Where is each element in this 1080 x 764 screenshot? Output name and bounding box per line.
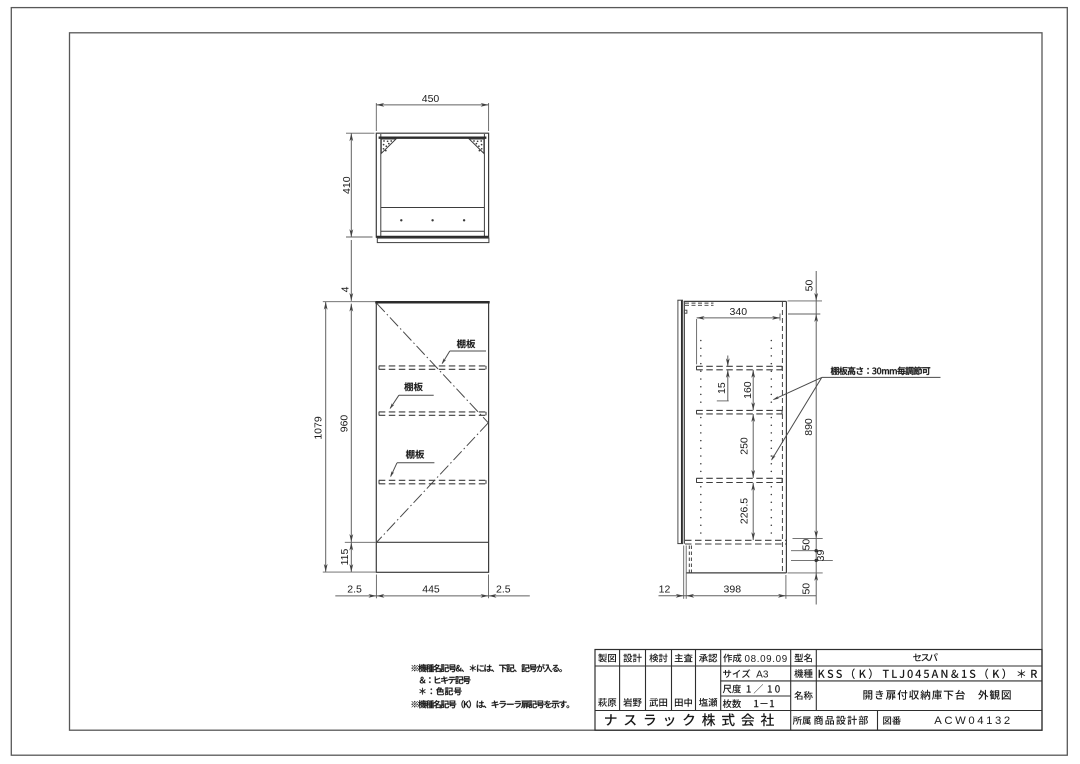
svg-text:12: 12 — [659, 583, 671, 595]
svg-text:50: 50 — [800, 583, 812, 595]
svg-text:115: 115 — [339, 548, 351, 565]
svg-text:450: 450 — [422, 93, 440, 105]
svg-text:39: 39 — [815, 550, 827, 562]
svg-text:410: 410 — [341, 176, 353, 194]
svg-text:A3: A3 — [756, 670, 769, 681]
svg-text:160: 160 — [742, 381, 754, 399]
svg-text:960: 960 — [339, 415, 351, 433]
svg-text:890: 890 — [803, 418, 815, 436]
svg-text:445: 445 — [422, 584, 440, 596]
svg-text:1079: 1079 — [313, 416, 325, 440]
svg-text:4: 4 — [340, 286, 352, 292]
svg-text:398: 398 — [724, 583, 742, 595]
svg-text:50: 50 — [800, 539, 812, 551]
svg-text:250: 250 — [739, 437, 751, 455]
svg-text:226.5: 226.5 — [739, 498, 751, 524]
svg-text:2.5: 2.5 — [496, 584, 511, 596]
svg-text:15: 15 — [716, 382, 728, 394]
svg-text:2.5: 2.5 — [347, 584, 362, 596]
svg-text:08.09.09: 08.09.09 — [745, 654, 788, 665]
svg-text:ACW04132: ACW04132 — [934, 715, 1013, 727]
svg-text:50: 50 — [804, 280, 816, 292]
svg-text:340: 340 — [730, 306, 748, 318]
